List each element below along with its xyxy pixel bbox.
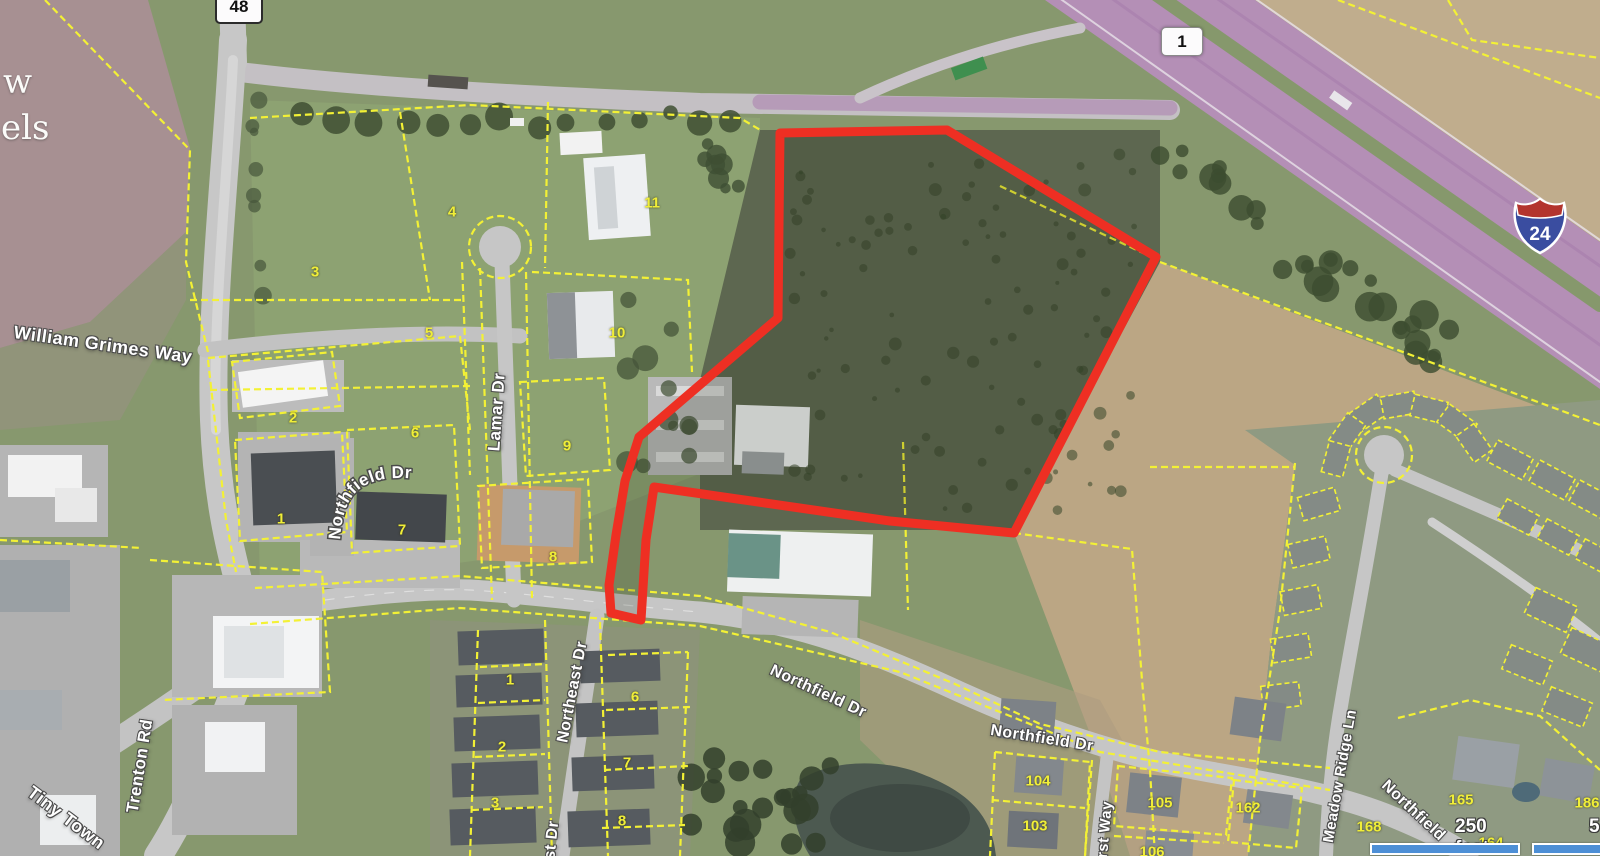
cutoff-overlay-text-2: els [1,108,49,148]
cutoff-overlay-text-1: w [3,62,32,102]
scale-bar-label-partial: 5 [1589,816,1600,838]
route-48-shield: 48 [215,0,263,24]
satellite-parcel-map[interactable]: Northfield Dr 34562111098711236781041051… [0,0,1600,856]
interstate-24-shield-label: 24 [1529,224,1551,245]
route-1-shield-label: 1 [1177,32,1186,52]
scale-bar-segment-1 [1370,843,1520,855]
map-canvas: Northfield Dr [0,0,1600,856]
scale-bar-segment-2 [1532,843,1600,855]
route-1-shield: 1 [1161,27,1203,56]
interstate-24-shield: 24 [1512,196,1568,256]
route-48-shield-label: 48 [230,0,249,17]
